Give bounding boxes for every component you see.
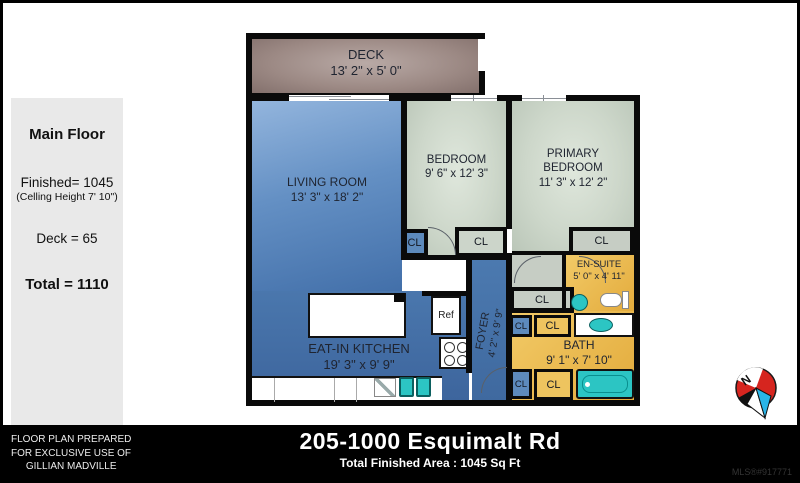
closet-label: CL [407,237,421,249]
footer-bar: FLOOR PLAN PREPARED FOR EXCLUSIVE USE OF… [3,425,797,480]
room-dims: 11' 3" x 12' 2" [512,176,634,190]
counter-divider [334,378,335,402]
north-compass-icon: N [725,361,791,425]
room-name: EAT-IN KITCHEN [259,341,459,357]
bath-vanity [574,313,634,337]
area-summary-panel: Main Floor Finished= 1045 (Celling Heigh… [11,98,123,431]
room-dims: 13' 2" x 5' 0" [286,63,446,79]
room-dims: 5' 0" x 4' 11" [563,271,635,283]
closet-label: CL [594,235,608,247]
closet-label: CL [515,321,527,332]
bathtub [576,369,634,399]
room-name: PRIMARY [512,147,634,161]
wall [422,291,469,296]
ensuite-toilet-bowl [600,293,622,307]
closet-label: CL [546,379,560,391]
room-name: LIVING ROOM [257,175,397,190]
wall [401,255,512,260]
deck-opening [478,39,486,71]
dishwasher-icon [374,378,396,397]
bedroom-window [451,95,497,101]
bath-sink [589,318,613,332]
counter-divider [356,378,357,402]
bedroom-label: BEDROOM 9' 6" x 12' 3" [407,153,506,182]
closet-bath-lower: CL [534,369,573,400]
room-name: BEDROOM [407,153,506,167]
room-name: BATH [523,338,635,353]
sliding-door-pane [329,99,389,100]
kitchen-island [308,293,406,338]
window-divider [543,95,544,101]
bath-label: BATH 9' 1" x 7' 10" [523,338,635,368]
room-dims: 9' 1" x 7' 10" [523,353,635,368]
total-finished-area: Total Finished Area : 1045 Sq Ft [63,456,797,470]
window-line [451,98,497,99]
mls-number: MLS®#917771 [732,467,792,477]
sliding-door [289,95,389,101]
kitchen-sink [416,377,431,397]
deck-area: Deck = 65 [11,231,123,246]
primary-window [522,95,566,101]
living-label: LIVING ROOM 13' 3" x 18' 2" [257,175,397,205]
room-name: DECK [286,47,446,63]
ceiling-height: (Celling Height 7' 10") [11,191,123,203]
refrigerator-label: Ref [438,310,454,321]
finished-area: Finished= 1045 [11,175,123,190]
deck-label: DECK 13' 2" x 5' 0" [286,47,446,80]
closet-foyer-upper: CL [510,315,532,337]
wall [466,253,472,373]
wall [512,251,634,255]
closet-label: CL [545,320,559,332]
bathtub-drain [585,382,590,387]
sliding-door-pane [289,96,351,97]
window-line [522,98,566,99]
refrigerator: Ref [431,296,461,335]
room-dims: 13' 3" x 18' 2" [257,190,397,205]
room-dims: 9' 6" x 12' 3" [407,167,506,181]
kitchen-sink [399,377,414,397]
window-divider [473,95,474,101]
closet-label: CL [474,236,488,248]
closet-bath-upper: CL [534,315,571,337]
kitchen-label: EAT-IN KITCHEN 19' 3" x 9' 9" [259,341,459,374]
floorplan-page: Main Floor Finished= 1045 (Celling Heigh… [0,0,800,483]
room-name: EN-SUITE [563,259,635,271]
primary-label: PRIMARY BEDROOM 11' 3" x 12' 2" [512,147,634,190]
total-area: Total = 1110 [11,276,123,293]
address-title: 205-1000 Esquimalt Rd [63,428,797,455]
counter-divider [274,378,275,402]
island-corner [394,293,405,302]
room-name: BEDROOM [512,161,634,175]
closet-foyer-lower: CL [510,369,532,399]
room-dims: 19' 3" x 9' 9" [259,357,459,373]
closet-label: CL [515,379,527,390]
ensuite-toilet-tank [622,291,629,309]
closet-label: CL [535,294,549,306]
ensuite-label: EN-SUITE 5' 0" x 4' 11" [563,259,635,283]
floor-title: Main Floor [11,126,123,143]
closet-bedroom-right: CL [455,227,507,257]
